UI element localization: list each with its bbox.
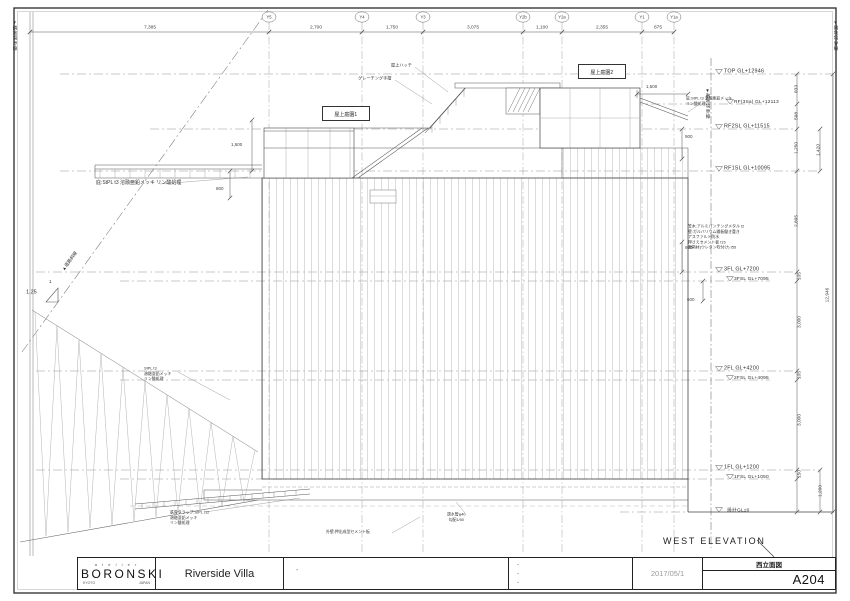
hill-spec-line3: リン酸処理	[144, 377, 171, 382]
drawing-title-en: WEST ELEVATION	[663, 536, 766, 546]
revision-mark: -	[517, 563, 519, 567]
dim-3000-b: 3,000	[796, 414, 802, 426]
drain-spec-block: 透水管φ40 勾配1/50	[447, 512, 466, 523]
dim-1500-v: 1,500	[231, 142, 242, 147]
drawing-title-jp: 西立面図	[703, 558, 835, 571]
boundary-right-label: ▼隣地境界線	[832, 20, 839, 51]
hill-spec-block: StPL t3 溶融亜鉛メッキ リン酸処理	[144, 366, 171, 382]
dim-598: 598	[793, 112, 799, 120]
ext-wall-spec-label: 外壁:押出成型セメント板	[326, 529, 370, 535]
dim-600: 600	[687, 297, 695, 302]
revision-mark: -	[296, 567, 298, 574]
dim-1500-h: 1,500	[646, 84, 657, 89]
grid-bubbles	[262, 12, 681, 22]
drawing-number: A204	[793, 572, 825, 587]
wall-spec-block: 笠木:アルミパンチングメタル t2 壁:ガルバリウム鋼板働き葺き アスファルト防…	[688, 224, 744, 250]
level-2fl: 2FL GL+4200	[724, 365, 759, 371]
title-block: a t e l i e r BORONSKI KYOTO JAPAN River…	[77, 557, 836, 590]
canopy-spec-label: 庇:StPL t3 溶融亜鉛メッキ リン酸処理	[96, 178, 181, 186]
level-top: TOP GL+12946	[724, 68, 764, 74]
building-outline	[95, 83, 834, 512]
grid-bubble-y2a: Y2a	[558, 15, 565, 20]
dim-top-5: 1,100	[536, 24, 548, 30]
boundary-site-label: ▼敷地境界線	[704, 88, 711, 119]
elevation-line-art	[0, 0, 850, 601]
project-name-cell: Riverside Villa	[156, 558, 284, 589]
grid-bubble-y3: Y3	[420, 15, 425, 20]
date-cell: 2017/05/1	[633, 558, 703, 589]
dim-top-3: 1,750	[386, 24, 398, 30]
slope-ratio-label: 1.25	[26, 289, 37, 295]
roof-garden-2-box: 屋上庭園2	[578, 64, 626, 79]
grid-bubble-y1a: Y1a	[670, 15, 677, 20]
roof-garden-1-box: 屋上庭園1	[322, 106, 370, 121]
dim-1250: 1,250	[793, 142, 799, 154]
dim-3000-a: 3,000	[796, 316, 802, 328]
level-rf2sl: RF2SL GL+11515	[724, 123, 770, 129]
level-gl: 設計GL±0	[727, 506, 750, 513]
dim-1200: 1,200	[817, 485, 823, 497]
project-name-label: Riverside Villa	[185, 568, 255, 580]
roof-garden-2-label: 屋上庭園2	[591, 68, 614, 76]
level-markers	[716, 70, 734, 513]
top-dimension-line	[28, 30, 676, 34]
revision-mark: -	[517, 581, 519, 585]
wall-spec-line5: 断熱材(ウレタン吹付け) t55	[688, 245, 744, 250]
roof-garden-1-label: 屋上庭園1	[335, 110, 358, 118]
drain-spec-line1: 透水管φ40	[447, 512, 466, 517]
dim-105-b: 105	[796, 371, 802, 379]
grid-bubble-y4: Y4	[359, 15, 364, 20]
wall-spec-line1: 笠木:アルミパンチングメタル t2	[688, 224, 744, 229]
firm-city-label: KYOTO	[83, 581, 95, 585]
firm-country-label: JAPAN	[139, 581, 150, 585]
revision-cell-2: - - -	[509, 558, 633, 589]
grid-bubble-y5: Y5	[266, 15, 271, 20]
dim-105-a: 105	[796, 272, 802, 280]
dim-total-height: 12,946	[824, 288, 830, 303]
dim-150: 150	[796, 470, 802, 478]
grid-bubble-y1: Y1	[639, 15, 644, 20]
dim-900-a: 900	[685, 134, 693, 139]
drain-spec-line2: 勾配1/50	[447, 517, 466, 522]
grid-bubble-y2b: Y2b	[519, 15, 526, 20]
revision-mark: -	[517, 572, 519, 576]
level-3fl: 3FL GL+7200	[724, 266, 759, 272]
boundary-left-label: ▼隣地境界線	[11, 20, 18, 51]
slope-unit-label: 1	[49, 279, 52, 284]
level-2fsl: 2FSL GL+4095	[734, 375, 769, 381]
revision-cell-1: -	[284, 558, 509, 589]
level-rf1sl: RF1SL GL+10095	[724, 165, 770, 171]
drawing-sheet: 7,385 2,700 1,750 3,075 1,100 2,355 875 …	[0, 0, 850, 601]
dim-top-1: 7,385	[144, 24, 156, 30]
dim-833: 833	[793, 85, 799, 93]
level-rf3sa: RF(3Sa) GL+12113	[734, 99, 779, 105]
dim-top-4: 3,075	[467, 24, 479, 30]
sheet-number-cell: 西立面図 A204	[703, 558, 835, 589]
firm-name-label: BORONSKI	[81, 567, 152, 581]
firm-logo: a t e l i e r BORONSKI KYOTO JAPAN	[78, 558, 156, 589]
ladder-spec-block: 鉄骨タラップ:StPL t12 溶融亜鉛メッキ リン酸処理	[170, 510, 209, 526]
level-3fsl: 3FSL GL+7095	[734, 276, 769, 282]
dim-2895: 2,895	[793, 215, 799, 227]
dim-1420: 1,420	[815, 144, 821, 156]
roof-hatch-label: 屋上ハッチ	[391, 62, 412, 68]
level-1fl: 1FL GL+1200	[724, 464, 759, 470]
dim-top-7: 875	[654, 24, 662, 30]
date-label: 2017/05/1	[651, 569, 684, 578]
grating-label: グレーチング手摺	[358, 75, 392, 81]
dim-top-2: 2,700	[310, 24, 322, 30]
ladder-spec-line1: 鉄骨タラップ:StPL t12	[170, 510, 209, 515]
dim-top-6: 2,355	[596, 24, 608, 30]
dim-800: 800	[216, 186, 224, 191]
level-1fsl: 1FSL GL+1050	[734, 474, 769, 480]
ladder-spec-line3: リン酸処理	[170, 521, 209, 526]
